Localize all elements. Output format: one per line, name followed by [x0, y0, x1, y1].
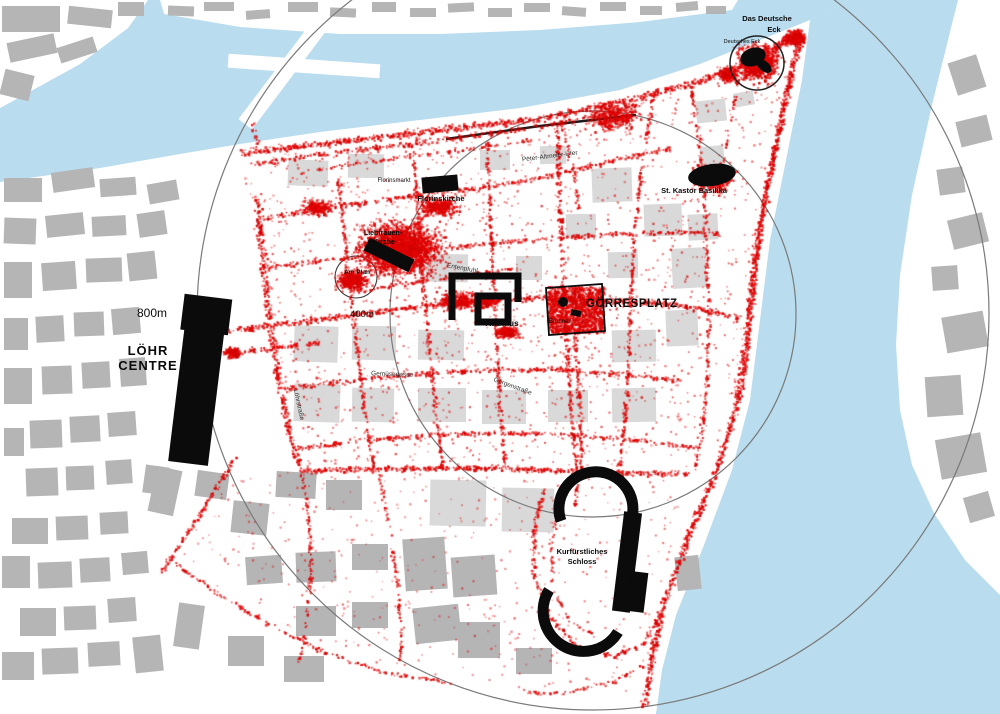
- goerresplatz-fountain: [558, 297, 568, 307]
- gps-trace-map: Das Deutsche Eck Deutsches Eck St. Kasto…: [0, 0, 1000, 714]
- label-loehr-line2: CENTRE: [118, 358, 177, 373]
- label-street-goergenstrasse: Görgenstraße: [492, 376, 532, 396]
- label-street-gemuesegasse: Gemüsegasse: [371, 370, 414, 378]
- label-eck-line2: Eck: [767, 25, 781, 34]
- map-label-layer: Das Deutsche Eck Deutsches Eck St. Kasto…: [0, 0, 1000, 714]
- label-brunnen: Brunnen: [549, 319, 572, 325]
- label-florinsmarkt: Florinsmarkt: [377, 178, 410, 184]
- florinskirche-building: [421, 174, 458, 193]
- label-eck-line1: Das Deutsche: [742, 14, 792, 23]
- label-liebfrauen-line2: Kirche: [373, 239, 395, 246]
- label-goerresplatz: GÖRRESPLATZ: [586, 297, 678, 310]
- label-street-loehrstrasse: Löhrstraße: [292, 389, 305, 422]
- label-kastor: St. Kastor Basilika: [661, 186, 728, 195]
- label-loehr-line1: LÖHR: [128, 343, 169, 358]
- label-schloss-line1: Kurfürstliches: [557, 547, 608, 556]
- label-schloss-line2: Schloss: [568, 557, 597, 566]
- kastor-building: [687, 161, 738, 189]
- label-liebfrauen-line1: Liebfrauen-: [364, 230, 403, 237]
- goerresplatz-monument: [570, 309, 581, 317]
- eck-monument: [738, 44, 774, 76]
- label-rathaus: Rathaus: [485, 318, 519, 328]
- label-ring-400m: 400m: [350, 309, 374, 320]
- rathaus-building: [452, 276, 518, 322]
- label-ring-800m: 800m: [137, 306, 167, 320]
- label-eck-sub: Deutsches Eck: [724, 39, 761, 45]
- loehr-centre-building: [168, 294, 232, 466]
- label-am-plan: Am Plan: [344, 269, 370, 276]
- label-street-ufer: Peter-Altmeier-Ufer: [522, 150, 579, 164]
- label-florinskirche: Florinskirche: [417, 194, 464, 203]
